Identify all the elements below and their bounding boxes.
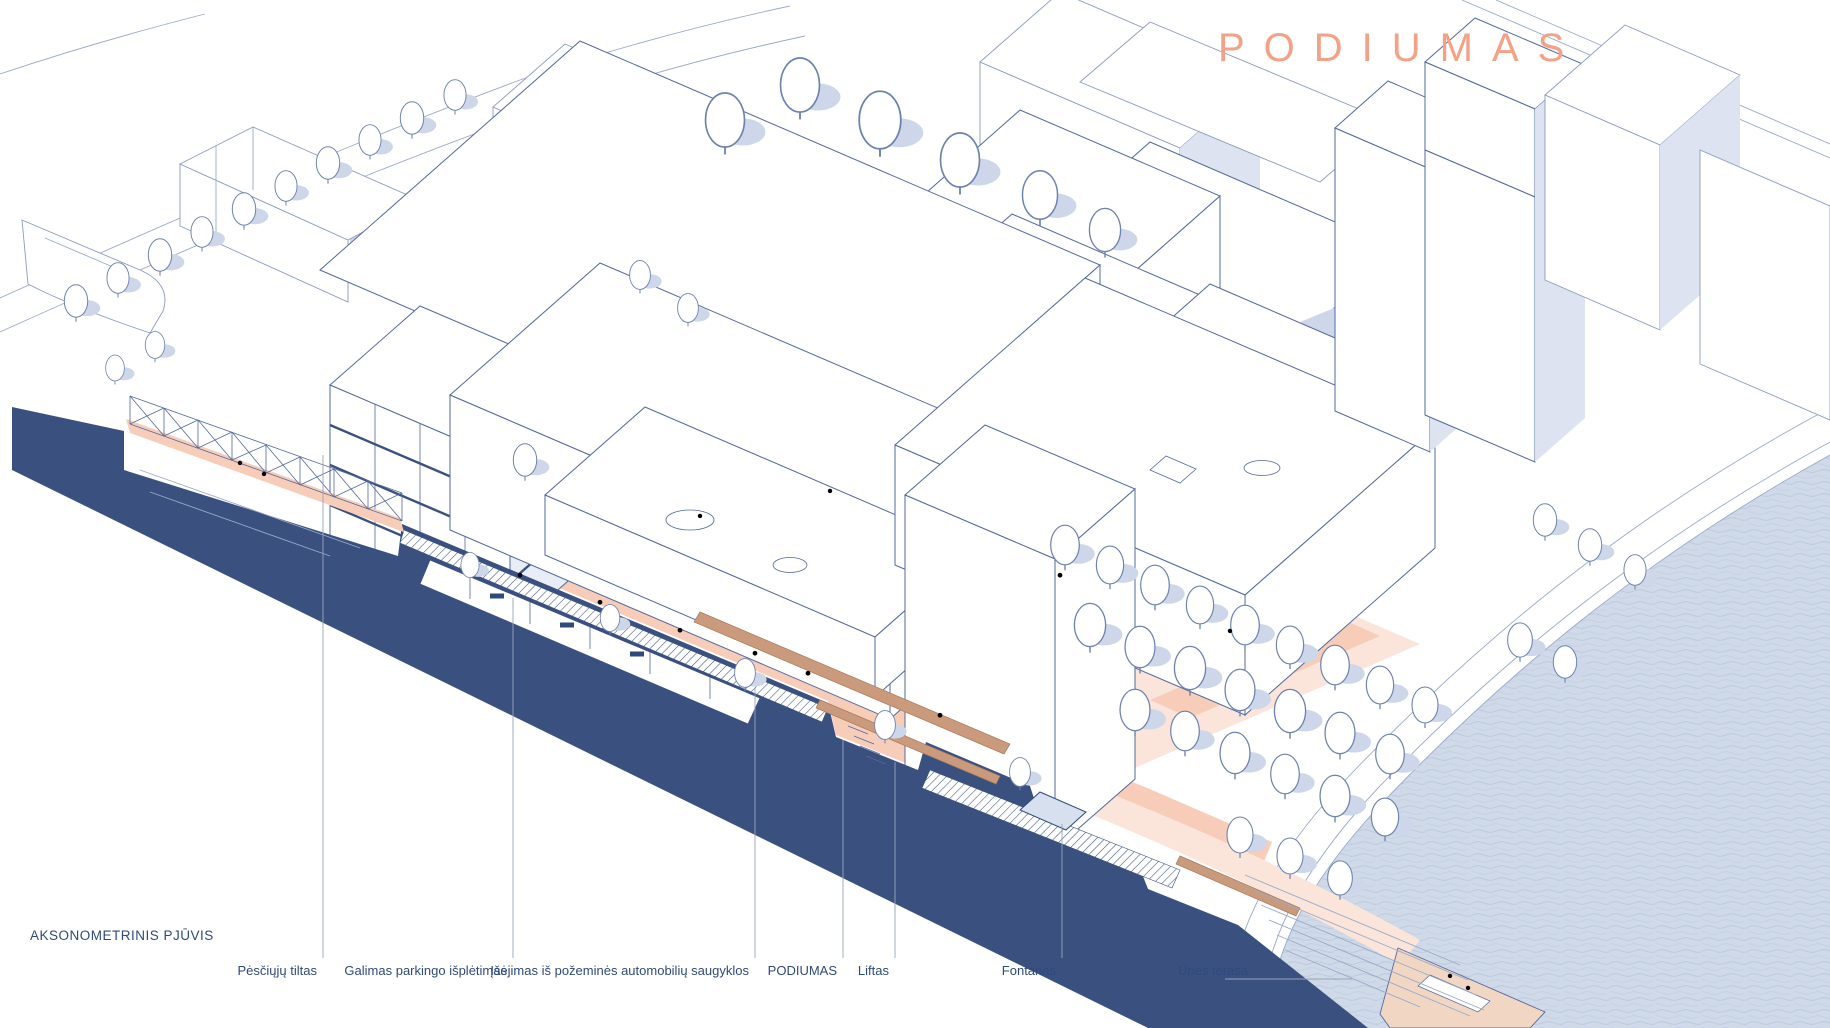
label-garage-entrance: Įšėjimas iš požeminės automobilių saugyk…	[490, 963, 749, 978]
label-pedestrian-bridge: Pėsčiųjų tiltas	[238, 963, 318, 978]
label-parking-extension: Galimas parkingo išplėtimas	[344, 963, 507, 978]
project-title: PODIUMAS	[1218, 26, 1583, 70]
context-towers-right	[1545, 25, 1830, 420]
label-lift: Liftas	[858, 963, 890, 978]
label-fountain: Fontanas	[1002, 963, 1057, 978]
label-river-terrace: Upės terasa	[1178, 963, 1249, 978]
drawing-caption: AKSONOMETRINIS PJŪVIS	[30, 928, 214, 943]
label-podiumas: PODIUMAS	[768, 963, 838, 978]
drawing-canvas: AKSONOMETRINIS PJŪVIS Pėsčiųjų tiltas Ga…	[0, 0, 1830, 1028]
axonometric-section-drawing: AKSONOMETRINIS PJŪVIS Pėsčiųjų tiltas Ga…	[0, 0, 1830, 1028]
